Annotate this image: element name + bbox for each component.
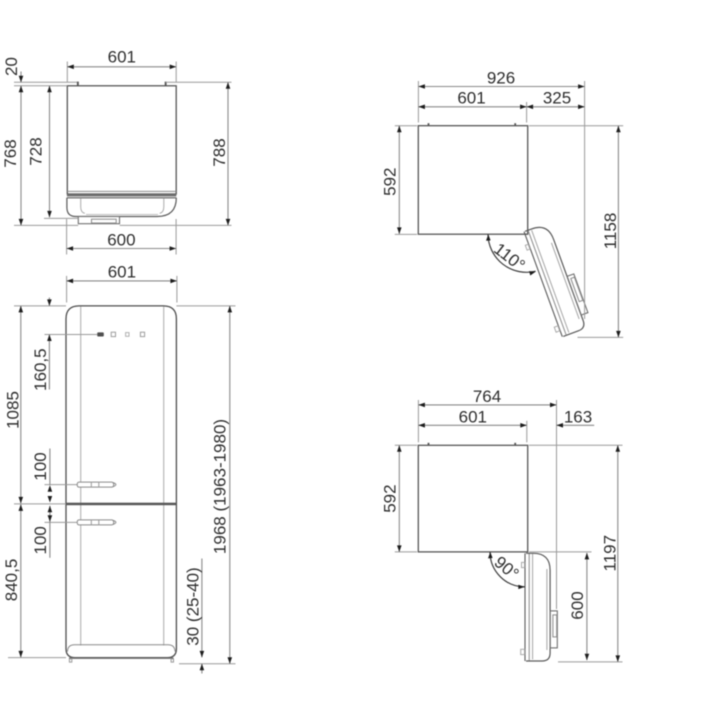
svg-text:100: 100 [31,526,50,554]
svg-text:1158: 1158 [601,213,620,250]
svg-text:30 (25-40): 30 (25-40) [184,567,203,645]
svg-text:764: 764 [473,387,501,406]
svg-text:100: 100 [31,452,50,480]
svg-text:20: 20 [2,57,21,76]
svg-text:840,5: 840,5 [2,559,21,602]
svg-text:1197: 1197 [601,535,620,572]
svg-text:160,5: 160,5 [31,348,50,391]
svg-text:600: 600 [568,591,587,619]
svg-text:601: 601 [108,263,136,282]
svg-text:768: 768 [1,139,20,167]
svg-text:926: 926 [487,68,515,87]
svg-text:601: 601 [457,88,485,107]
svg-text:163: 163 [564,407,592,426]
svg-text:601: 601 [108,48,136,67]
svg-text:1968 (1963-1980): 1968 (1963-1980) [210,419,229,554]
svg-text:325: 325 [543,88,571,107]
svg-text:592: 592 [380,484,399,512]
svg-text:728: 728 [27,137,46,165]
svg-text:1085: 1085 [3,391,22,429]
svg-text:788: 788 [210,138,229,166]
svg-text:600: 600 [107,231,135,250]
svg-text:601: 601 [459,407,487,426]
svg-text:592: 592 [380,168,399,196]
